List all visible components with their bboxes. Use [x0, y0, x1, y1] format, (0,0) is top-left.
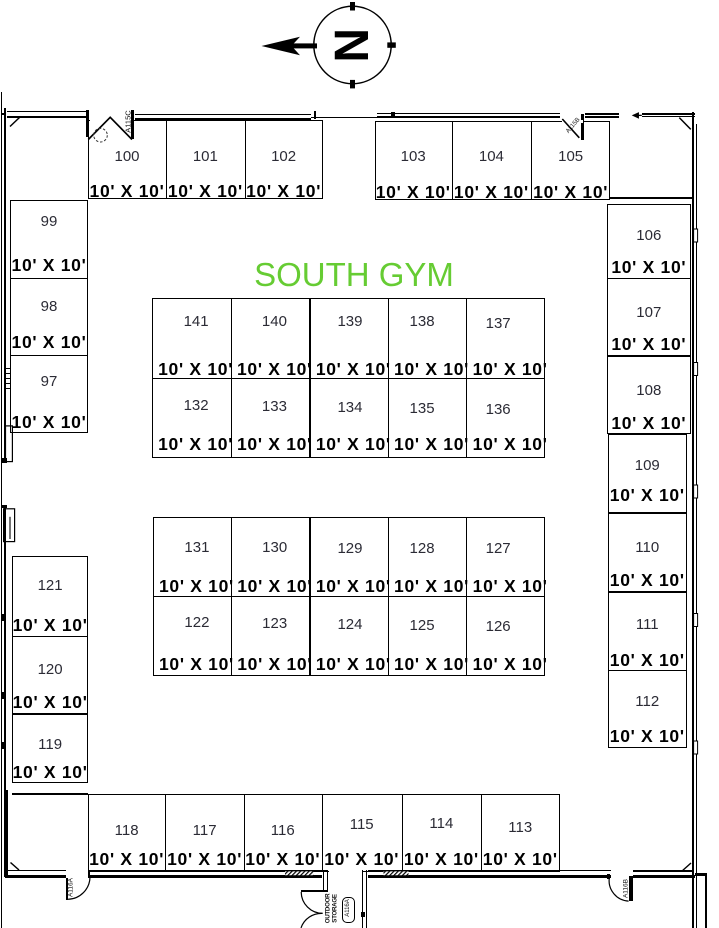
svg-text:N: N [326, 28, 379, 63]
